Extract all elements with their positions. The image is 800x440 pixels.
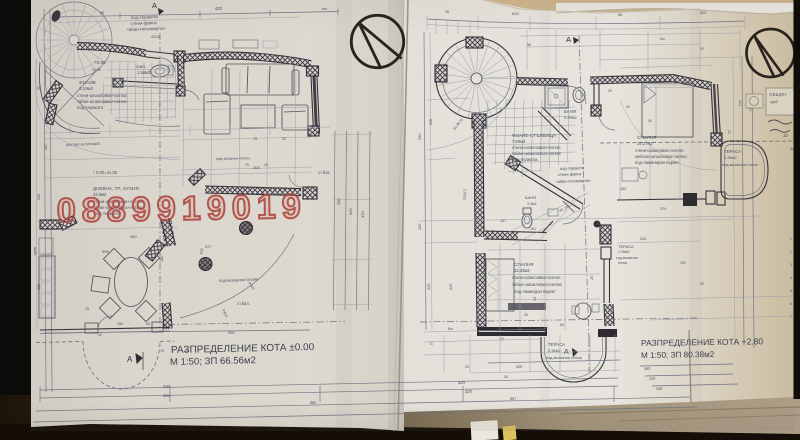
svg-text:13.33м2: 13.33м2 — [514, 268, 530, 273]
svg-text:34: 34 — [533, 297, 537, 301]
svg-text:2.36м2: 2.36м2 — [724, 155, 738, 160]
svg-text:25: 25 — [596, 222, 600, 226]
svg-text:стени-шпакловка+латекс: стени-шпакловка+латекс — [512, 275, 561, 280]
svg-text:т 0.00=41.00: т 0.00=41.00 — [93, 170, 118, 175]
svg-text:3.19м2: 3.19м2 — [79, 86, 94, 91]
svg-text:1.25м2: 1.25м2 — [618, 250, 629, 254]
svg-text:+0.00: +0.00 — [94, 60, 106, 65]
svg-text:под-ламиндон паркет: под-ламиндон паркет — [514, 289, 556, 294]
svg-text:40: 40 — [264, 163, 268, 167]
svg-text:242: 242 — [640, 237, 646, 241]
svg-text:тоал.: тоал. — [135, 64, 146, 69]
svg-text:25: 25 — [85, 307, 89, 311]
svg-text:20: 20 — [465, 365, 469, 369]
svg-text:460: 460 — [44, 144, 48, 150]
svg-text:161: 161 — [530, 227, 536, 231]
svg-text:РАЗПРЕДЕЛЕНИЕ КОТА +2.80: РАЗПРЕДЕЛЕНИЕ КОТА +2.80 — [641, 336, 764, 348]
svg-text:под-мозаечни плочи: под-мозаечни плочи — [546, 356, 582, 360]
svg-text:420: 420 — [449, 284, 453, 290]
svg-text:420: 420 — [427, 284, 431, 290]
svg-text:под-теракота: под-теракота — [512, 157, 538, 162]
svg-text:250: 250 — [37, 194, 41, 200]
svg-text:75: 75 — [253, 137, 257, 141]
svg-text:СПАЛНЯ: СПАЛНЯ — [637, 135, 656, 140]
svg-text:227: 227 — [205, 244, 212, 249]
svg-text:80: 80 — [560, 323, 564, 327]
svg-text:420: 420 — [418, 224, 422, 230]
svg-text:стени-шпакловка+латекс: стени-шпакловка+латекс — [635, 148, 684, 153]
svg-text:СПАЛНЯ: СПАЛНЯ — [514, 262, 533, 267]
svg-text:под-мозаечни: под-мозаечни — [616, 256, 638, 260]
svg-text:БАНЯ: БАНЯ — [564, 109, 576, 114]
svg-text:160: 160 — [117, 322, 123, 326]
svg-text:стени-фаянс: стени-фаянс — [558, 171, 582, 177]
svg-text:570(4?): 570(4?) — [463, 189, 467, 200]
svg-text:420: 420 — [215, 6, 223, 11]
svg-text:8m: 8m — [448, 327, 453, 331]
svg-text:290: 290 — [429, 119, 433, 125]
svg-text:280: 280 — [130, 234, 137, 239]
svg-text:под-теракота: под-теракота — [131, 14, 158, 20]
svg-text:6m: 6m — [660, 37, 665, 41]
svg-text:табан-шпакловка+латекс: табан-шпакловка+латекс — [77, 99, 128, 104]
svg-text:420: 420 — [516, 365, 522, 369]
svg-text:мебели-шпакловка+латекс: мебели-шпакловка+латекс — [635, 154, 687, 159]
svg-text:420: 420 — [360, 211, 365, 218]
svg-text:75: 75 — [245, 163, 249, 167]
svg-text:под-кожачни плочи: под-кожачни плочи — [216, 156, 250, 161]
svg-text:ОБЩИН: ОБЩИН — [769, 92, 787, 97]
svg-text:2.: 2. — [790, 250, 793, 254]
svg-text:280: 280 — [160, 256, 164, 262]
svg-text:под-теракота: под-теракота — [560, 165, 585, 171]
svg-text:6.: 6. — [790, 302, 793, 306]
svg-text:620: 620 — [512, 11, 519, 16]
svg-text:1.58м2: 1.58м2 — [137, 70, 151, 75]
svg-text:A: A — [566, 35, 571, 44]
svg-text:865: 865 — [310, 401, 316, 405]
svg-text:3.2м2: 3.2м2 — [527, 202, 536, 206]
svg-text:под-ламиниран паркет: под-ламиниран паркет — [635, 160, 679, 165]
svg-text:90: 90 — [37, 86, 41, 90]
svg-text:05: 05 — [700, 47, 704, 51]
svg-text:6m: 6m — [322, 7, 327, 11]
svg-text:290: 290 — [418, 134, 422, 140]
svg-text:16: 16 — [500, 337, 504, 341]
svg-text:420: 420 — [465, 389, 473, 394]
svg-text:ст.бал.: ст.бал. — [237, 301, 250, 306]
svg-text:25: 25 — [590, 276, 594, 280]
svg-text:табан+шпакловка+латекс: табан+шпакловка+латекс — [512, 282, 562, 287]
svg-text:А: А — [564, 349, 569, 356]
svg-text:ТЕРАСА: ТЕРАСА — [548, 342, 565, 347]
svg-text:G: G — [430, 342, 433, 346]
svg-text:ТЕРАСА: ТЕРАСА — [724, 149, 741, 154]
svg-text:16.27м2: 16.27м2 — [637, 141, 653, 146]
svg-text:98: 98 — [527, 43, 531, 47]
svg-text:1.: 1. — [790, 237, 793, 241]
svg-text:422: 422 — [738, 100, 742, 106]
svg-text:374: 374 — [660, 207, 666, 211]
svg-text:05: 05 — [700, 282, 704, 286]
svg-text:305: 305 — [253, 165, 260, 170]
svg-text:под-теракота: под-теракота — [77, 105, 104, 110]
svg-text:05: 05 — [626, 105, 630, 109]
svg-text:4.: 4. — [790, 276, 793, 280]
svg-text:420: 420 — [348, 208, 353, 215]
svg-text:0889919019: 0889919019 — [56, 188, 307, 230]
svg-text:одоб: одоб — [770, 100, 778, 104]
svg-text:Р20: Р20 — [200, 248, 204, 254]
svg-text:кухня: кухня — [33, 247, 37, 255]
svg-text:420: 420 — [458, 380, 466, 385]
svg-text:10: 10 — [783, 133, 788, 138]
svg-text:167: 167 — [500, 219, 506, 223]
svg-text:05: 05 — [727, 130, 731, 134]
svg-text:330: 330 — [620, 187, 626, 191]
svg-text:280: 280 — [336, 198, 341, 205]
svg-text:3.: 3. — [790, 263, 793, 267]
svg-text:75: 75 — [160, 349, 164, 353]
svg-text:5.: 5. — [790, 289, 793, 293]
svg-text:М 1:50; ЗП 66.56м2: М 1:50; ЗП 66.56м2 — [170, 355, 256, 368]
svg-text:26: 26 — [504, 375, 508, 379]
svg-text:7.: 7. — [790, 315, 793, 319]
svg-text:3.99м2: 3.99м2 — [564, 115, 578, 120]
svg-text:365: 365 — [37, 284, 41, 290]
svg-text:34 05: 34 05 — [92, 68, 101, 72]
svg-text:М 1:50; ЗП 80.38м2: М 1:50; ЗП 80.38м2 — [641, 350, 715, 360]
svg-text:ФОАЙЕ-СТЪЛБИЩА: ФОАЙЕ-СТЪЛБИЩА — [512, 131, 557, 138]
svg-text:395: 395 — [102, 249, 109, 254]
svg-text:стени-шпакловка+латекс: стени-шпакловка+латекс — [77, 93, 128, 98]
svg-text:ТЕРАСА: ТЕРАСА — [618, 244, 634, 249]
svg-text:табан-шпакловка+латекс: табан-шпакловка+латекс — [512, 151, 561, 156]
svg-text:05: 05 — [608, 89, 612, 93]
svg-text:420: 420 — [649, 377, 655, 381]
svg-text:ст.бок.: ст.бок. — [318, 170, 330, 175]
svg-text:26: 26 — [524, 313, 528, 317]
svg-text:под-мозаечни плочи: под-мозаечни плочи — [722, 163, 758, 167]
svg-text:440: 440 — [656, 387, 662, 391]
svg-text:плочи: плочи — [618, 261, 627, 265]
svg-text:стени-шпакловка+латекс: стени-шпакловка+латекс — [512, 145, 561, 150]
svg-text:193: 193 — [680, 261, 686, 265]
svg-text:A: A — [127, 355, 133, 364]
svg-text:A: A — [152, 1, 157, 10]
svg-text:390: 390 — [644, 367, 650, 371]
svg-text:42/16: 42/16 — [151, 35, 160, 39]
svg-text:x2: x2 — [98, 333, 102, 337]
svg-text:7.50м2: 7.50м2 — [512, 139, 526, 144]
svg-text:25: 25 — [282, 137, 286, 141]
svg-text:897: 897 — [510, 397, 516, 401]
svg-text:620: 620 — [700, 11, 706, 15]
svg-text:445: 445 — [163, 393, 171, 398]
svg-text:05: 05 — [648, 119, 652, 123]
svg-text:58: 58 — [618, 13, 622, 17]
svg-text:БАНЯ: БАНЯ — [525, 195, 536, 200]
svg-text:420: 420 — [163, 384, 171, 389]
svg-text:98: 98 — [445, 10, 449, 14]
svg-text:60: 60 — [146, 322, 150, 326]
